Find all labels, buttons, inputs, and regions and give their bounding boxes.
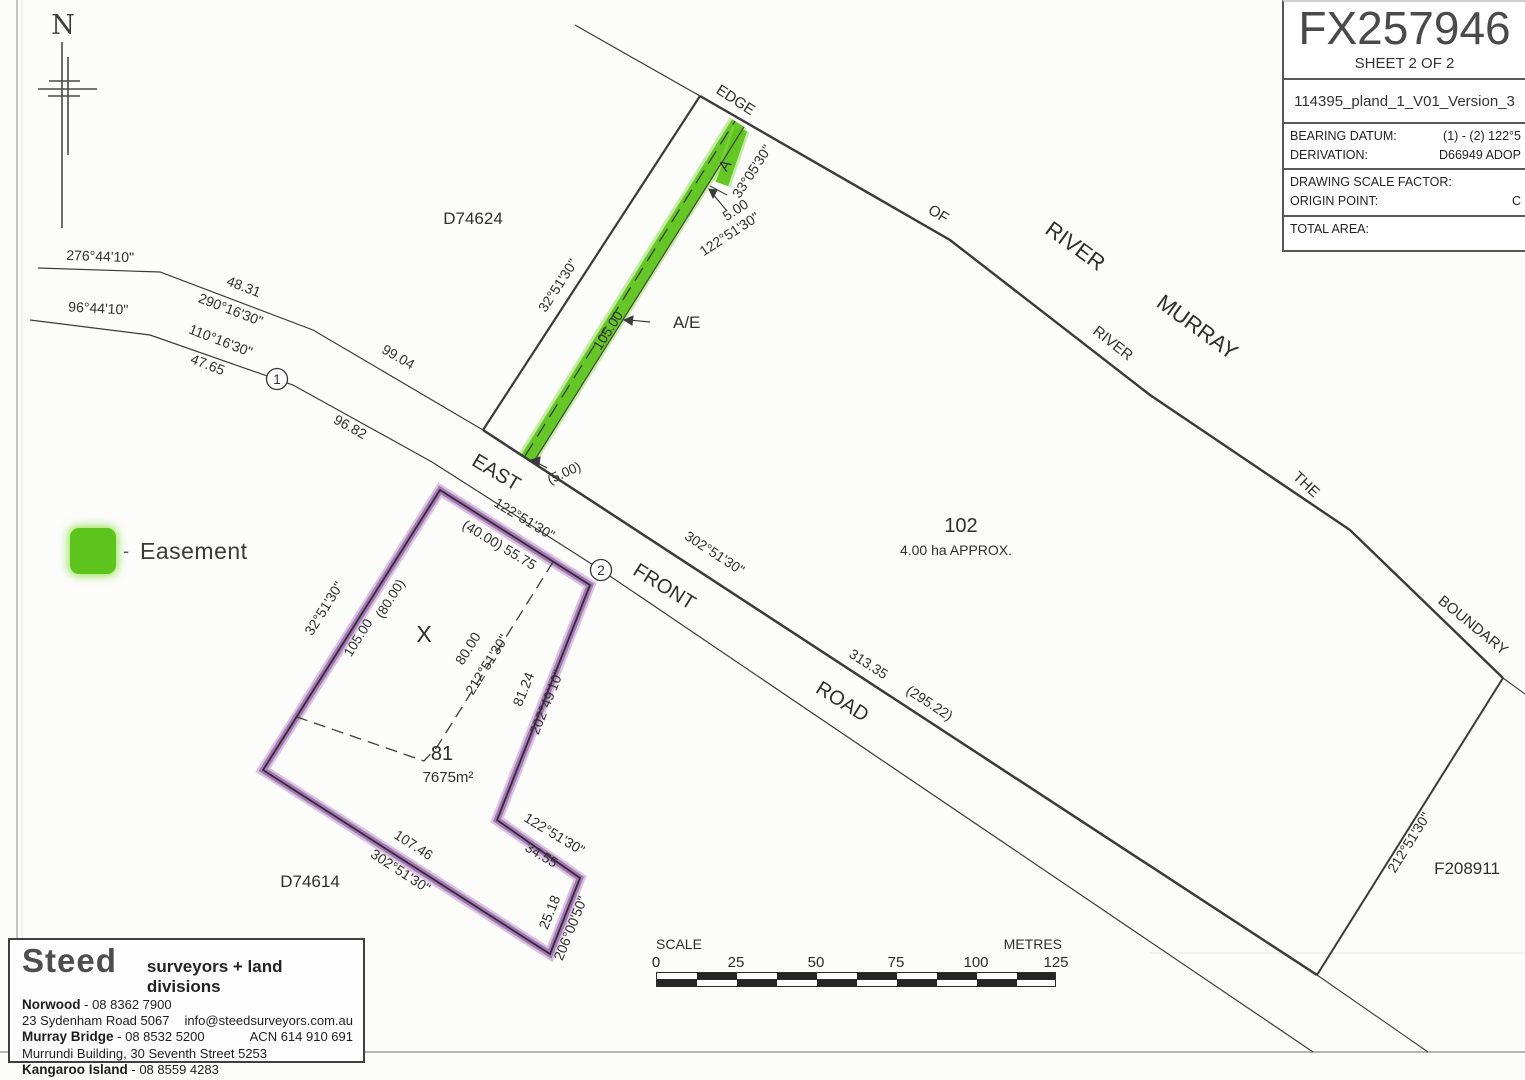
scale-tick-0: 0 xyxy=(652,954,660,971)
scale-tick-100: 100 xyxy=(963,954,988,971)
bearing-datum-value: (1) - (2) 122°5 xyxy=(1443,127,1521,146)
dim-n1-bearing: 276°44'10" xyxy=(66,247,134,265)
murray-bridge-name: Murray Bridge xyxy=(22,1029,114,1044)
scale-bar: SCALE METRES 0 25 50 75 100 125 xyxy=(645,936,1065,987)
dim-s1-bearing: 96°44'10" xyxy=(68,298,129,317)
legend-dash: - xyxy=(123,541,129,562)
dim-n3-dist: 99.04 xyxy=(379,341,418,372)
north-arrow-icon xyxy=(38,42,97,228)
total-area-label: TOTAL AREA: xyxy=(1290,220,1369,239)
derivation-value: D66949 ADOP xyxy=(1439,146,1521,165)
lot102-area: 4.00 ha APPROX. xyxy=(900,542,1012,558)
survey-point-2: 2 xyxy=(591,560,612,581)
river-word-river-small: RIVER xyxy=(1089,323,1136,365)
scale-tick-125: 125 xyxy=(1043,954,1068,971)
river-name-murray: MURRAY xyxy=(1152,289,1243,364)
surveyor-email: info@steedsurveyors.com.au xyxy=(184,1013,353,1029)
scale-tick-75: 75 xyxy=(888,954,905,971)
norwood-address: 23 Sydenham Road 5067 xyxy=(22,1013,169,1029)
dim-road-dist: 313.35 xyxy=(846,645,891,682)
svg-text:1: 1 xyxy=(273,372,281,387)
north-label: N xyxy=(51,10,75,41)
scale-tick-50: 50 xyxy=(808,954,825,971)
scale-ticks: 0 25 50 75 100 125 xyxy=(645,954,1065,972)
bearing-datum-label: BEARING DATUM: xyxy=(1290,127,1397,146)
lot81-x-marker: X xyxy=(416,621,431,647)
total-area-group: TOTAL AREA: xyxy=(1284,215,1525,243)
surveyor-acn: ACN 614 910 691 xyxy=(250,1029,353,1045)
parcel-d74624: D74624 xyxy=(443,209,503,228)
river-name-river: RIVER xyxy=(1041,216,1110,276)
origin-point-value: C xyxy=(1512,192,1521,211)
dim-lot81-right-dist: 81.24 xyxy=(509,670,537,709)
lot81-number: 81 xyxy=(431,743,453,765)
kangaroo-island-phone: - 08 8559 4283 xyxy=(131,1062,218,1077)
plan-number: FX257946 xyxy=(1284,5,1525,52)
parcel-d74614: D74614 xyxy=(280,872,340,891)
surveyor-tagline: surveyors + land divisions xyxy=(147,957,353,997)
kangaroo-island-name: Kangaroo Island xyxy=(22,1062,128,1077)
scale-label: SCALE xyxy=(656,936,702,952)
parcel-f208911: F208911 xyxy=(1434,859,1500,878)
easement-tag: A/E xyxy=(673,313,700,332)
surveyor-brand: Steed xyxy=(22,942,117,980)
dim-n2-dist: 48.31 xyxy=(225,273,264,301)
norwood-phone: - 08 8362 7900 xyxy=(84,997,171,1012)
survey-point-1: 1 xyxy=(267,369,288,390)
dim-lot81-left-bearing: 32°51'30" xyxy=(301,579,346,638)
easement-legend: - Easement xyxy=(70,528,248,574)
river-word-edge: EDGE xyxy=(713,82,758,119)
road-name-front: FRONT xyxy=(629,559,699,614)
scale-bar-graphic xyxy=(656,972,1056,987)
murray-bridge-phone: - 08 8532 5200 xyxy=(117,1029,204,1044)
scale-unit: METRES xyxy=(1004,936,1062,952)
river-word-the: THE xyxy=(1289,468,1323,501)
bearing-datum-group: BEARING DATUM: (1) - (2) 122°5 DERIVATIO… xyxy=(1284,122,1525,169)
derivation-label: DERIVATION: xyxy=(1290,146,1368,165)
scale-factor-label: DRAWING SCALE FACTOR: xyxy=(1290,173,1452,192)
origin-point-label: ORIGIN POINT: xyxy=(1290,192,1378,211)
dim-d74624-bearing: 32°51'30" xyxy=(535,256,581,315)
dim-lot81-notch-dist: 34.55 xyxy=(522,839,560,871)
lot102-number: 102 xyxy=(944,515,977,537)
scale-tick-25: 25 xyxy=(728,954,745,971)
lot81-area: 7675m² xyxy=(423,769,474,786)
river-word-of: OF xyxy=(925,201,952,226)
scale-factor-group: DRAWING SCALE FACTOR: ORIGIN POINT: C xyxy=(1284,168,1525,215)
title-block: FX257946 SHEET 2 OF 2 114395_pland_1_V01… xyxy=(1282,0,1525,252)
dim-s3-dist: 96.82 xyxy=(331,411,370,442)
murray-bridge-address: Murrundi Building, 30 Seventh Street 525… xyxy=(22,1046,267,1062)
dim-road-dist2: (295.22) xyxy=(903,682,955,724)
easement-legend-label: Easement xyxy=(140,538,248,565)
surveyor-box: Steed surveyors + land divisions Norwood… xyxy=(8,938,365,1063)
survey-plan-page: N xyxy=(0,0,1525,1080)
svg-text:2: 2 xyxy=(597,563,605,578)
file-name: 114395_pland_1_V01_Version_3 xyxy=(1284,78,1525,122)
road-name-east: EAST xyxy=(468,450,524,496)
dim-lot102-bearing: 212°51'30" xyxy=(1384,809,1433,875)
dim-road-bearing: 302°51'30" xyxy=(682,528,748,578)
sheet-label: SHEET 2 OF 2 xyxy=(1284,55,1525,78)
easement-swatch-icon xyxy=(70,528,116,574)
norwood-name: Norwood xyxy=(22,997,81,1012)
